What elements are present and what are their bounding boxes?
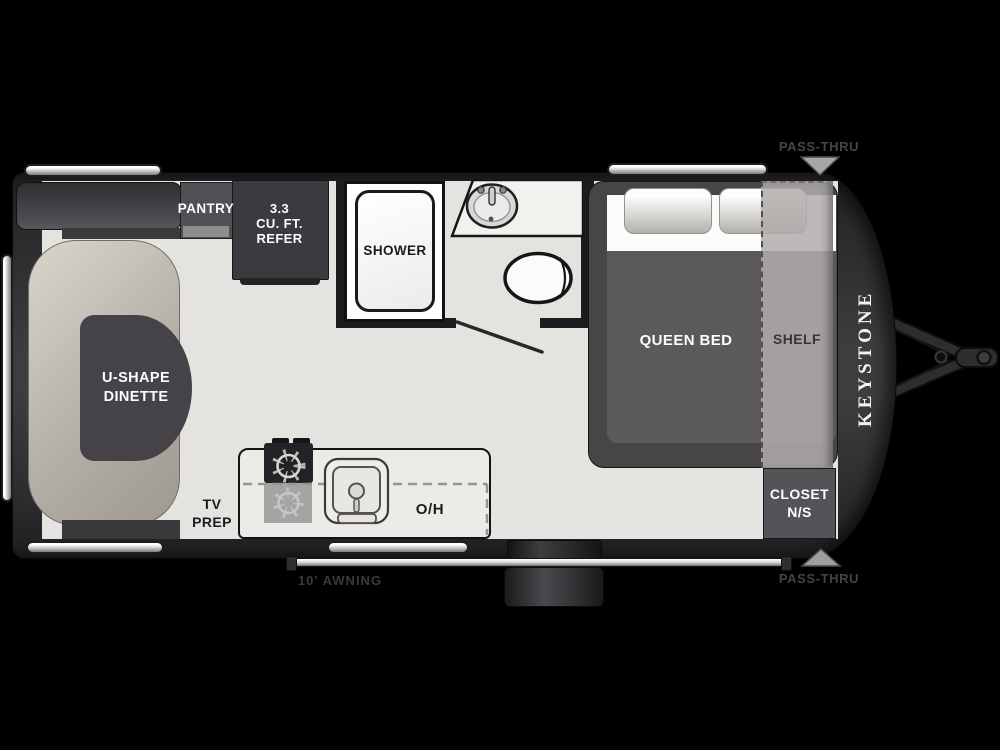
closet-label: CLOSET N/S <box>763 486 836 522</box>
pass-thru-arrow-up-icon <box>802 549 840 566</box>
overhead-cabinet-label: O/H <box>400 501 460 519</box>
window-top-right <box>607 163 768 176</box>
pass-thru-top-label: PASS-THRU <box>767 139 871 154</box>
pass-thru-arrow-down-icon <box>801 157 839 175</box>
queen-bed-label: QUEEN BED <box>620 332 752 350</box>
pass-thru-bottom-label: PASS-THRU <box>767 571 871 586</box>
tv-prep-label: TV PREP <box>182 496 242 532</box>
shelf-label: SHELF <box>766 331 828 348</box>
window-bottom-left <box>26 541 164 554</box>
window-rear <box>1 254 13 502</box>
refrigerator-label: 3.3 CU. FT. REFER <box>232 202 327 246</box>
window-bottom-mid <box>327 541 469 554</box>
awning-label: 10' AWNING <box>280 573 400 588</box>
pantry-label: PANTRY <box>172 201 240 217</box>
window-top-left <box>24 164 162 177</box>
keystone-logo: KEYSTONE <box>849 250 883 466</box>
floorplan-scene: U-SHAPE DINETTE PANTRY 3.3 CU. FT. REFER… <box>0 0 1000 750</box>
